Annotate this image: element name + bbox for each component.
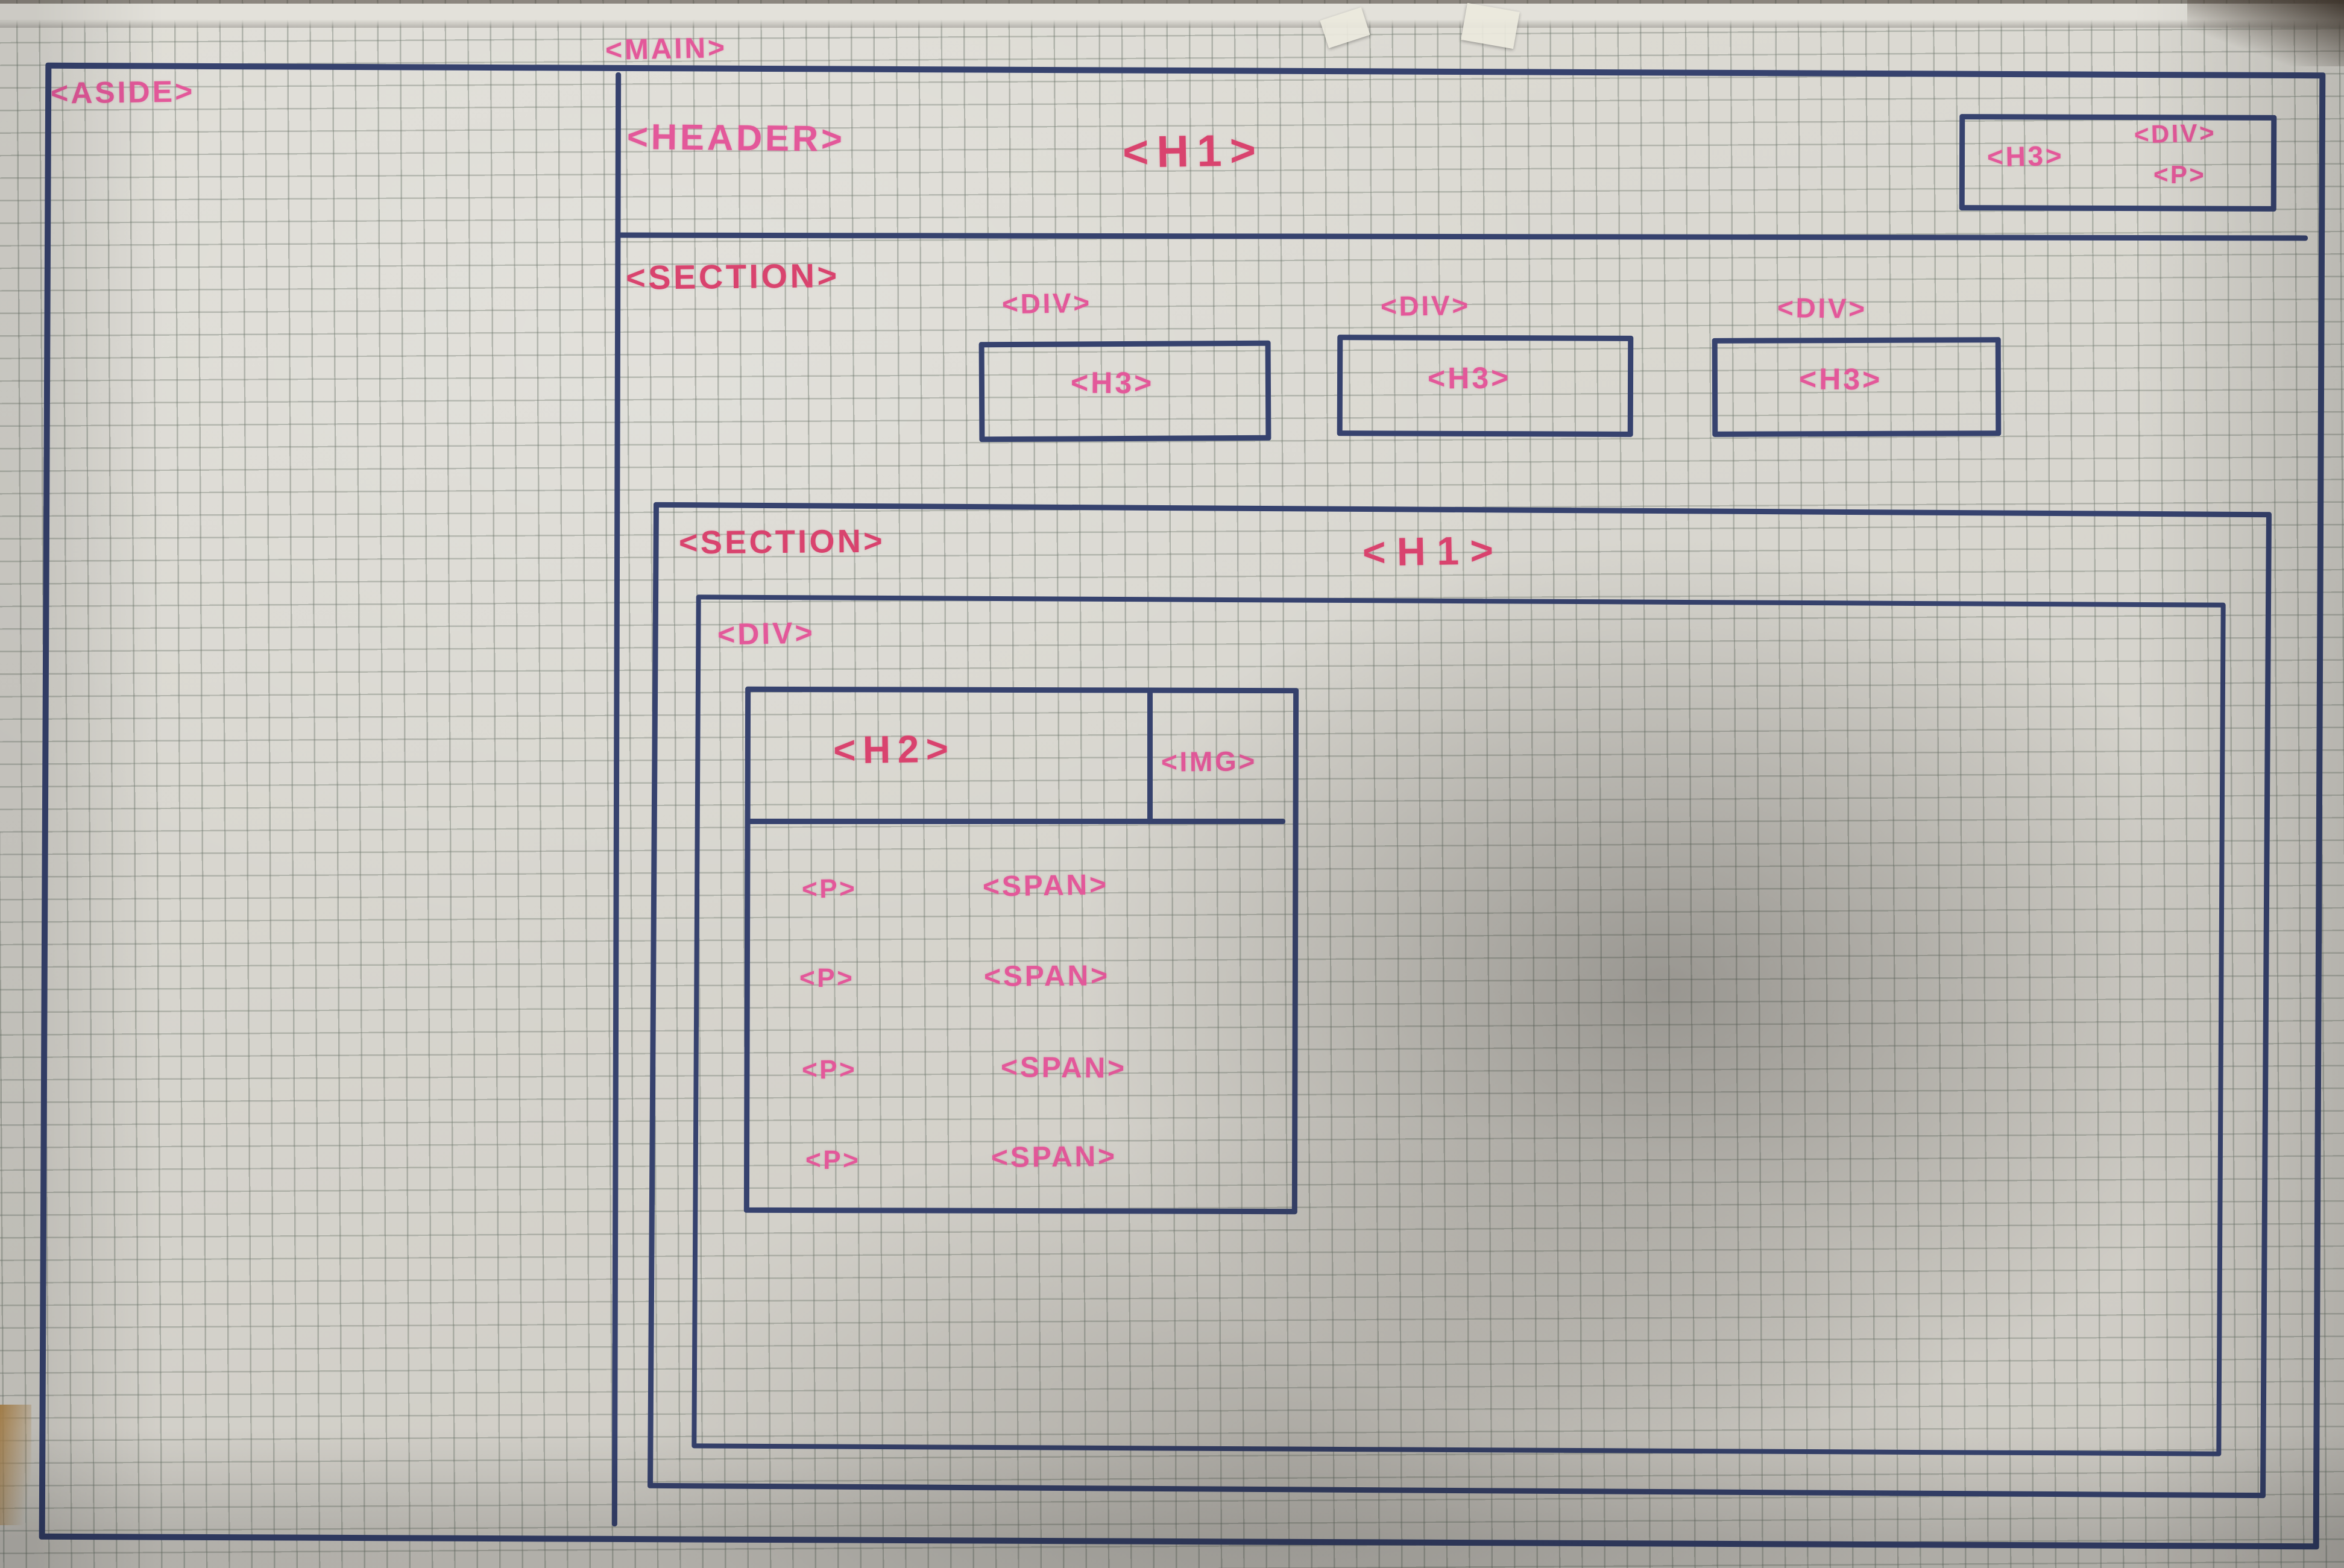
card-img-label: <IMG> [1161,745,1257,778]
section1-label: <SECTION> [626,256,840,297]
row-4-p-label: <P> [805,1145,861,1176]
feature-div-label-2: <DIV> [1381,289,1471,323]
row-1-span-label: <SPAN> [983,868,1109,904]
row-1-p-label: <P> [802,874,857,905]
feature-h3-label-1: <H3> [1071,365,1155,401]
photo-graph-paper: <ASIDE> <MAIN> <HEADER> <H1> <H3> <DIV> … [0,0,2344,1568]
row-2-span-label: <SPAN> [984,959,1110,993]
row-3-span-label: <SPAN> [1001,1051,1127,1085]
card-header-divider [746,819,1285,824]
main-label: <MAIN> [605,31,727,67]
row-2-p-label: <P> [799,963,855,994]
page-fold-edge [0,0,2344,28]
widget-p-label: <P> [2153,160,2207,190]
feature-div-label-3: <DIV> [1777,291,1868,325]
content-div-label: <DIV> [717,615,815,652]
section2-label: <SECTION> [679,523,886,562]
card-img-divider [1147,691,1153,822]
feature-div-label-1: <DIV> [1002,286,1092,321]
row-4-span-label: <SPAN> [991,1140,1117,1174]
header-label: <HEADER> [627,116,846,160]
widget-h3-label: <H3> [1987,139,2064,173]
feature-h3-label-3: <H3> [1799,362,1883,397]
photo-background-corner [2187,0,2344,66]
section2-h1-label: <H1> [1362,527,1505,575]
desk-corner [0,1405,31,1525]
card-h2-label: <H2> [833,726,956,773]
header-h1-label: <H1> [1122,124,1264,178]
widget-div-label: <DIV> [2134,118,2216,150]
row-3-p-label: <P> [802,1055,857,1085]
aside-label: <ASIDE> [51,74,195,110]
feature-h3-label-2: <H3> [1428,360,1511,395]
